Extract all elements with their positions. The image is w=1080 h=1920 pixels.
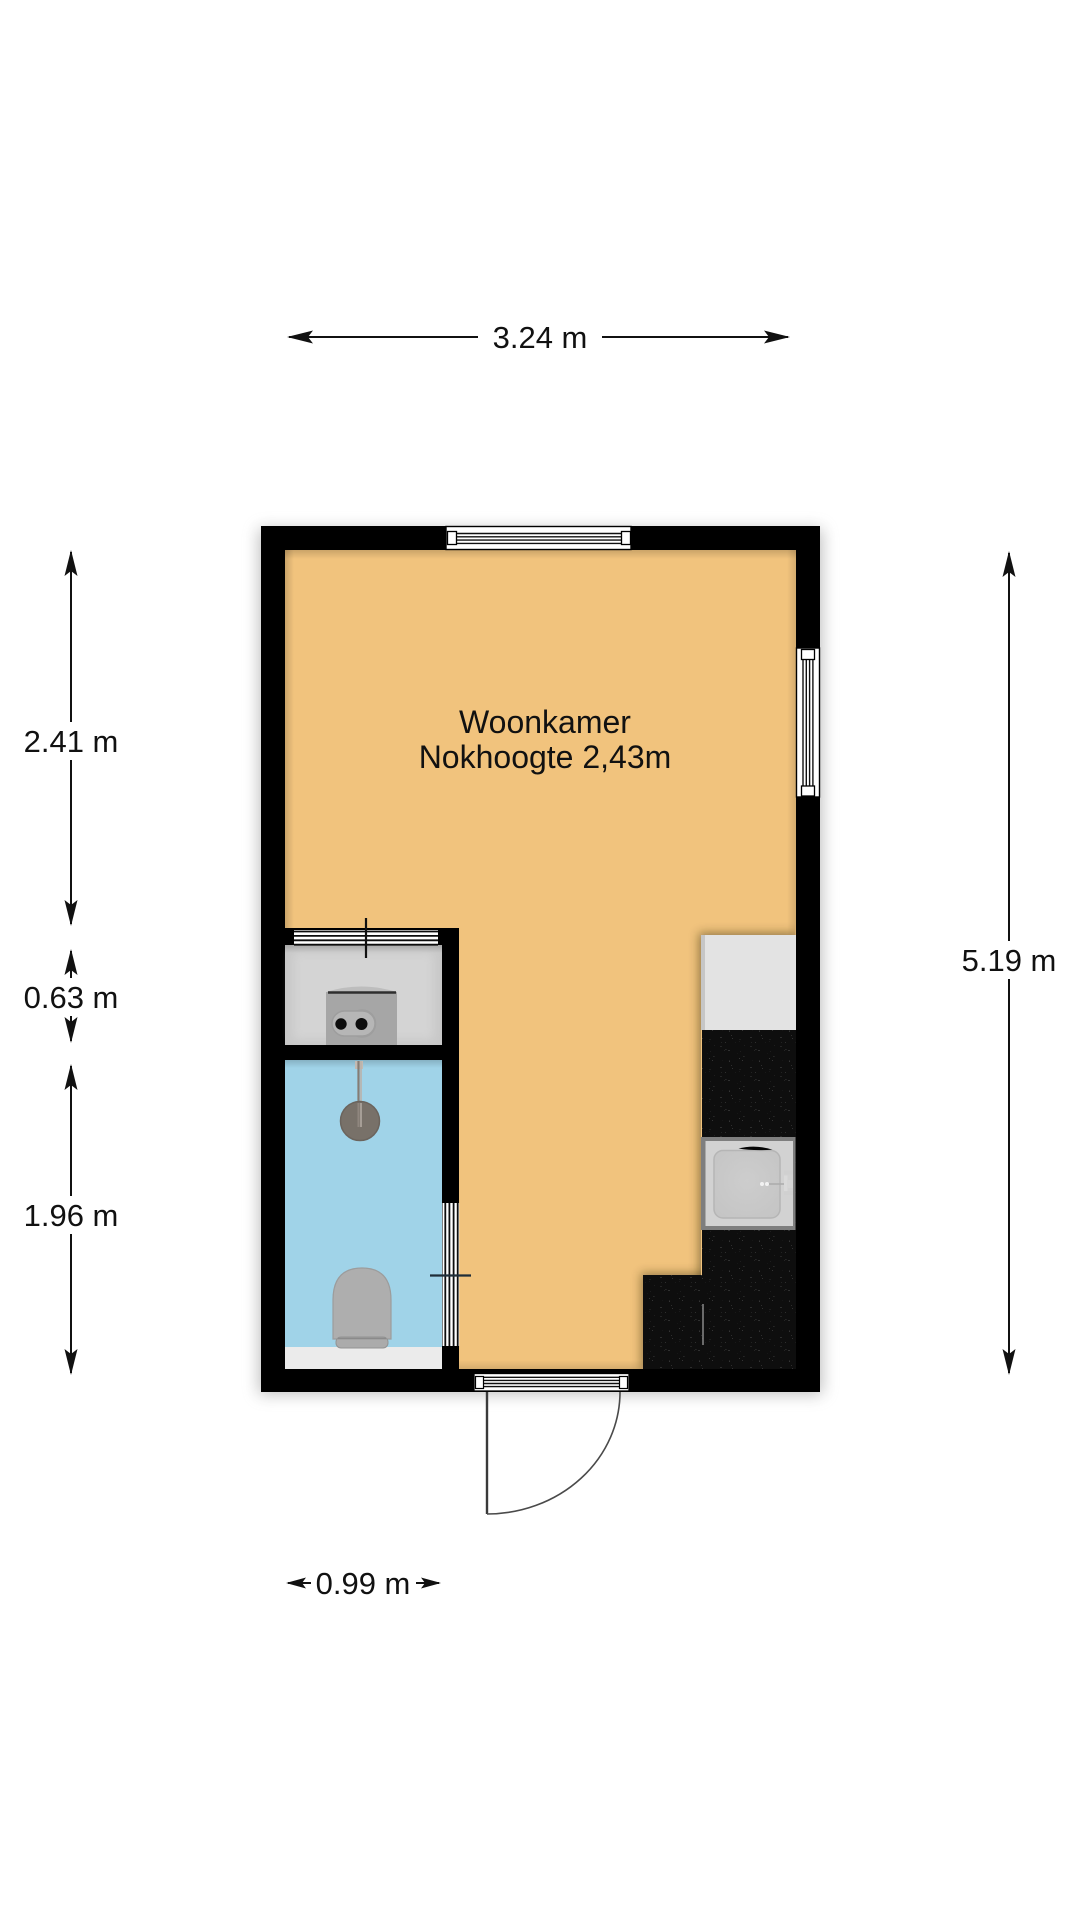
svg-text:Nokhoogte 2,43m: Nokhoogte 2,43m (419, 739, 672, 775)
svg-text:0.99 m: 0.99 m (316, 1566, 411, 1601)
svg-text:Woonkamer: Woonkamer (459, 704, 631, 740)
svg-text:2.41 m: 2.41 m (24, 724, 119, 759)
svg-text:3.24 m: 3.24 m (493, 320, 588, 355)
svg-text:0.63 m: 0.63 m (24, 980, 119, 1015)
svg-text:5.19 m: 5.19 m (962, 943, 1057, 978)
svg-text:1.96 m: 1.96 m (24, 1198, 119, 1233)
